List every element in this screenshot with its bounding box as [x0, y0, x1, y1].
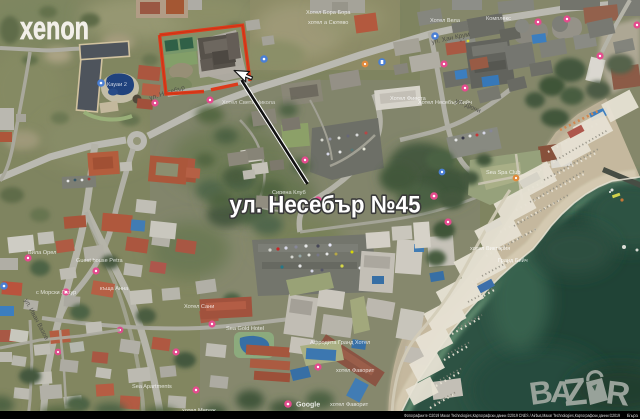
svg-text:Sea Spa Club: Sea Spa Club [486, 169, 521, 176]
svg-text:Sea Gold Hotel: Sea Gold Hotel [226, 325, 264, 332]
svg-text:Sea Apartments: Sea Apartments [132, 384, 172, 390]
svg-text:хотел а Сютево: хотел а Сютево [308, 20, 348, 26]
svg-text:Хотел Сани: Хотел Сани [184, 304, 214, 310]
svg-text:Кауаи 2: Кауаи 2 [107, 82, 127, 88]
svg-text:къща Анна: къща Анна [100, 286, 129, 292]
svg-text:Guest house Petra: Guest house Petra [76, 257, 124, 264]
svg-text:Афродита Гранд Хотел: Афродита Гранд Хотел [310, 339, 370, 346]
svg-text:xenon: xenon [20, 10, 89, 46]
svg-text:Комплекс: Комплекс [486, 16, 511, 22]
svg-text:Хотел Вела: Хотел Вела [430, 18, 461, 24]
svg-text:с Морски Лазур: с Морски Лазур [36, 290, 76, 296]
svg-text:Фотографиите ©2019 Maxar Techn: Фотографиите ©2019 Maxar Technologies,Ка… [404, 413, 620, 418]
svg-text:Google: Google [296, 401, 320, 409]
svg-text:Хотел Бора Бора: Хотел Бора Бора [306, 10, 351, 16]
svg-text:Хотел Свети Никола: Хотел Свети Никола [222, 100, 276, 106]
svg-text:хотел Фаворит: хотел Фаворит [336, 368, 375, 374]
svg-text:ул. Несебър №45: ул. Несебър №45 [230, 192, 421, 219]
svg-text:хотел Фаворит: хотел Фаворит [330, 402, 369, 408]
svg-text:Гранд Бийч: Гранд Бийч [498, 257, 528, 264]
svg-text:R: R [604, 373, 632, 413]
svg-text:Хотел Фиеста: Хотел Фиеста [390, 96, 427, 102]
svg-text:хотел Виктория: хотел Виктория [470, 246, 510, 252]
svg-text:Z: Z [562, 371, 589, 415]
svg-text:Бърз: Бърз [627, 413, 638, 418]
svg-text:Вила Орел: Вила Орел [28, 250, 56, 256]
